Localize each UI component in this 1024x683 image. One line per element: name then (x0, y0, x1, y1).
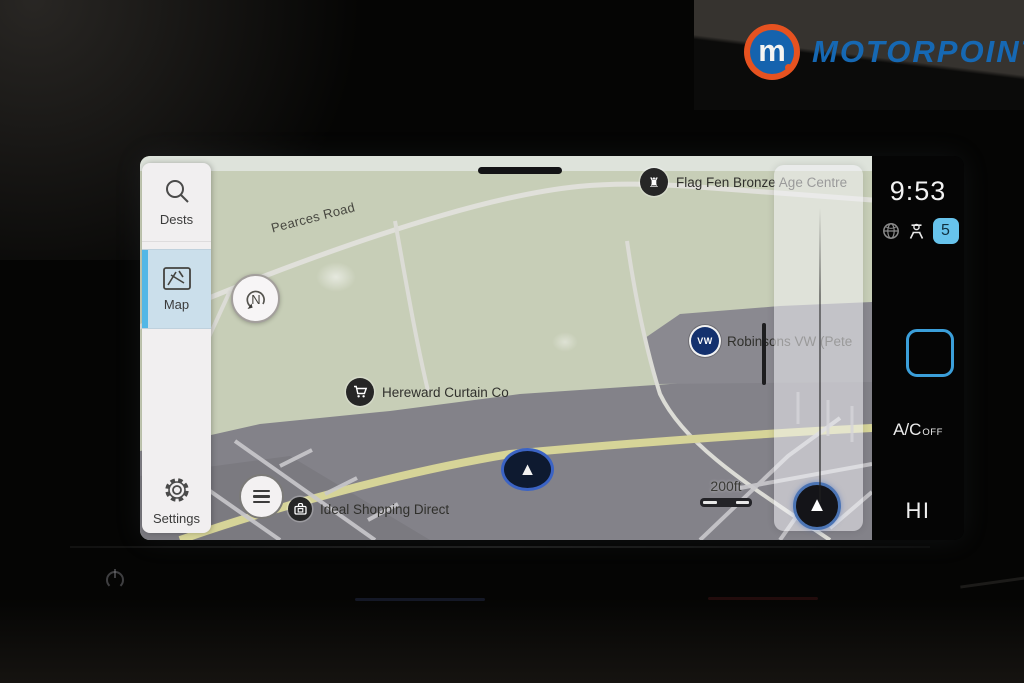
vehicle-position-marker: ▲ (501, 448, 554, 491)
dashboard-glint (960, 574, 1024, 588)
fan-level[interactable]: HI (872, 498, 964, 524)
search-icon (162, 177, 192, 207)
ac-status[interactable]: A/COFF (872, 420, 964, 440)
map-icon (161, 266, 193, 292)
hamburger-icon (253, 490, 270, 493)
panel-scroll-indicator (762, 323, 766, 385)
poi-label: Ideal Shopping Direct (320, 502, 449, 517)
recenter-button[interactable]: ▲ (793, 482, 841, 530)
map-side-panel (774, 165, 863, 531)
ac-label: A/C (893, 420, 921, 439)
globe-icon (882, 222, 900, 240)
poi-hereward-curtain[interactable]: Hereward Curtain Co (346, 378, 509, 406)
compass-button[interactable]: N (231, 274, 280, 323)
dashboard-lower-trim (0, 598, 1024, 683)
shopping-cart-icon (346, 378, 374, 406)
north-arrow-icon: ▲ (807, 495, 827, 515)
sidebar-item-map[interactable]: Map (142, 249, 211, 329)
sidebar-item-label: Map (164, 297, 189, 312)
briefcase-icon (288, 497, 312, 521)
map-scale: 200ft (700, 478, 752, 507)
motorpoint-logo-icon: m (744, 24, 800, 80)
power-icon (102, 566, 128, 592)
vw-badge-icon: VW (691, 327, 719, 355)
bezel-bottom-edge (70, 546, 930, 548)
nav-map[interactable]: Pearces Road ♜ Flag Fen Bronze Age Centr… (140, 156, 872, 540)
gear-icon (161, 474, 193, 506)
notification-badge[interactable]: 5 (933, 218, 959, 244)
poi-label: Hereward Curtain Co (382, 385, 509, 400)
infotainment-screen: Pearces Road ♜ Flag Fen Bronze Age Centr… (140, 156, 964, 540)
map-menu-button[interactable] (239, 474, 284, 519)
castle-icon: ♜ (640, 168, 668, 196)
power-button[interactable] (102, 566, 128, 592)
scale-bar (700, 498, 752, 507)
clock: 9:53 (872, 176, 964, 207)
poi-ideal-shopping[interactable]: Ideal Shopping Direct (288, 497, 449, 521)
sidebar-item-dests[interactable]: Dests (142, 163, 211, 242)
compass-north-icon: N (239, 282, 273, 316)
vehicle-heading-arrow: ▲ (519, 460, 537, 478)
touch-slider-reflection-left (355, 598, 485, 601)
status-icons-row: 5 (876, 218, 964, 244)
notification-drag-handle[interactable] (478, 167, 562, 174)
climate-shortcut-button[interactable] (906, 329, 954, 377)
nav-sidebar: Dests Map Settings (142, 163, 211, 533)
driver-profile-icon (907, 222, 926, 241)
sidebar-item-settings[interactable]: Settings (142, 467, 211, 533)
ac-state: OFF (922, 427, 943, 438)
status-column: 9:53 5 A/COFF HI (872, 156, 964, 540)
sidebar-item-label: Settings (153, 511, 200, 526)
motorpoint-monogram: m (758, 35, 786, 66)
touch-slider-reflection-right (708, 597, 818, 600)
svg-text:N: N (251, 292, 260, 307)
scale-label: 200ft (700, 478, 752, 494)
sidebar-item-label: Dests (160, 212, 193, 227)
motorpoint-logo: m MOTORPOINT (744, 24, 1024, 80)
motorpoint-logo-dot (785, 64, 792, 71)
motorpoint-wordmark: MOTORPOINT (812, 34, 1024, 70)
